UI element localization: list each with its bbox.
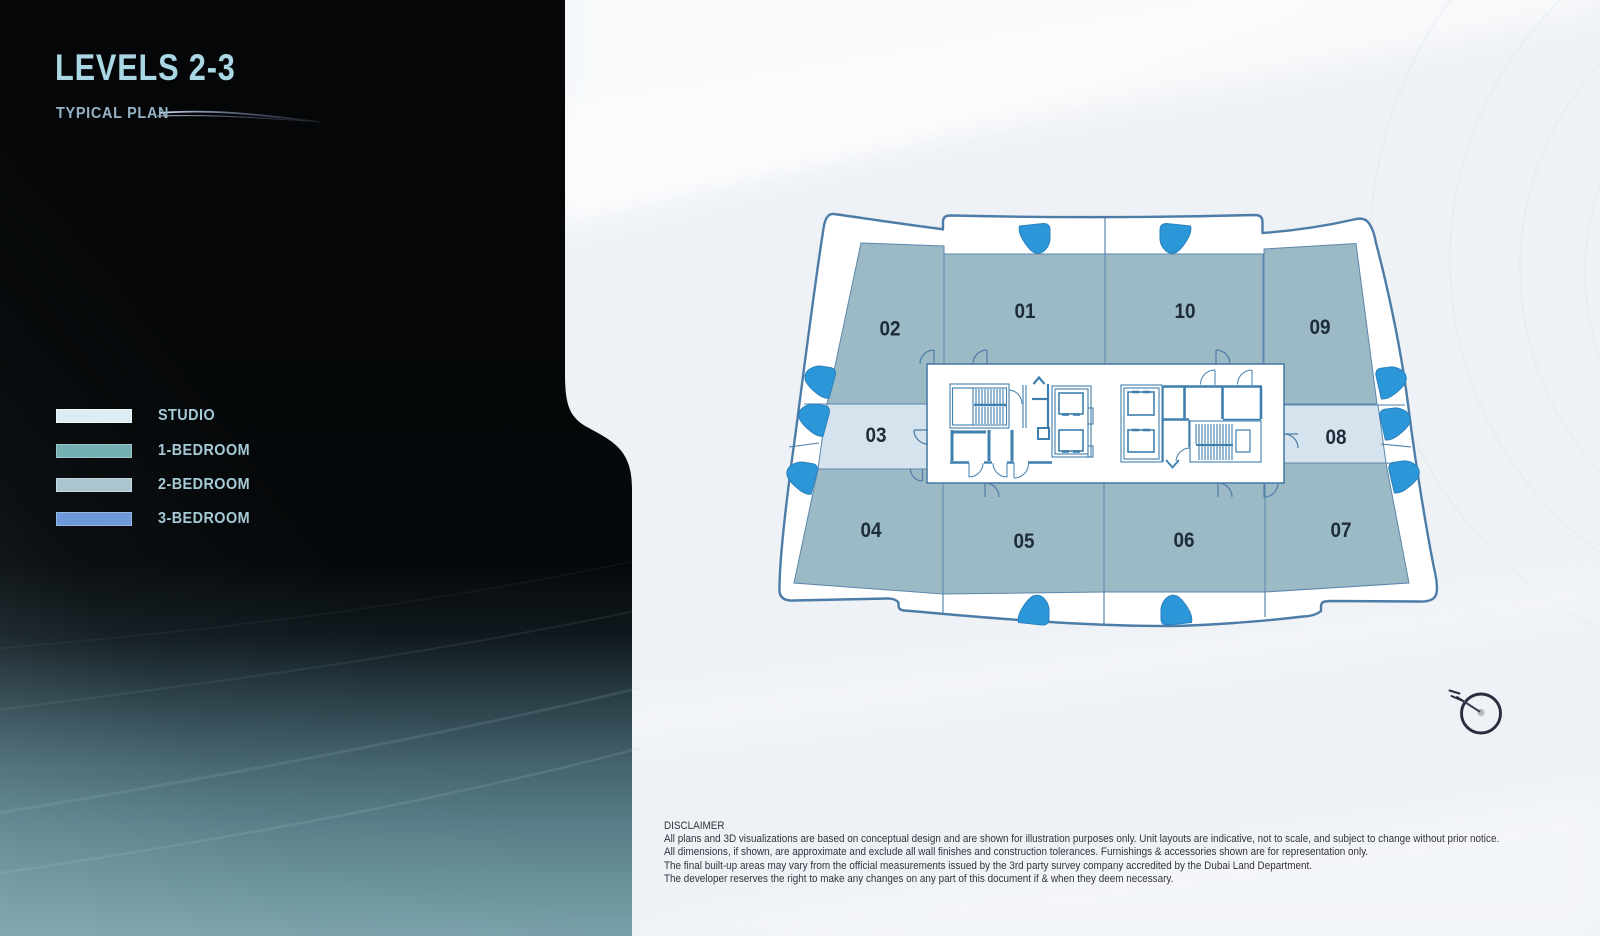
svg-text:10: 10 — [1175, 299, 1196, 323]
svg-text:04: 04 — [861, 518, 882, 542]
svg-text:02: 02 — [880, 317, 901, 341]
svg-text:09: 09 — [1310, 315, 1331, 339]
svg-text:05: 05 — [1014, 529, 1035, 553]
svg-text:06: 06 — [1174, 528, 1195, 552]
svg-text:03: 03 — [866, 423, 887, 447]
svg-text:07: 07 — [1331, 518, 1352, 542]
svg-text:08: 08 — [1326, 425, 1347, 449]
svg-text:01: 01 — [1015, 299, 1036, 323]
